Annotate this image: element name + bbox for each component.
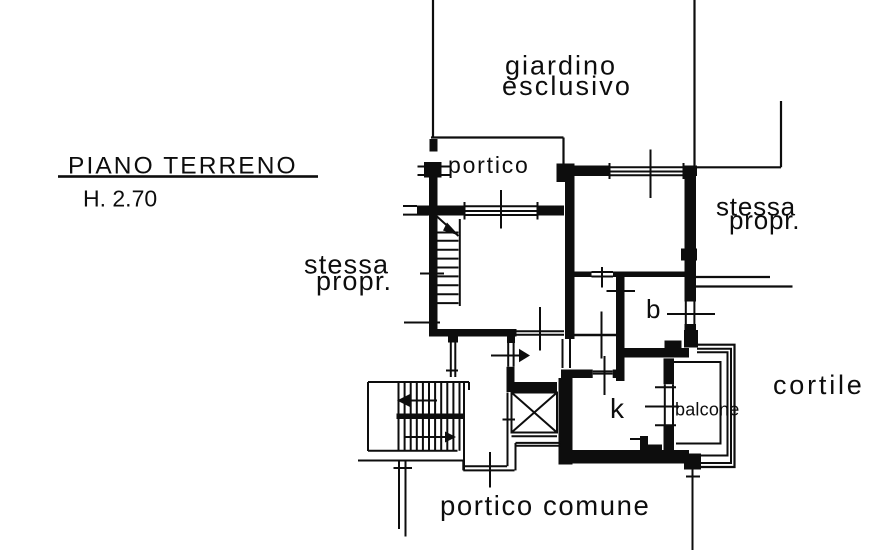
svg-text:b: b xyxy=(646,294,660,324)
svg-text:esclusivo: esclusivo xyxy=(502,71,632,101)
svg-text:H. 2.70: H. 2.70 xyxy=(83,186,157,212)
svg-text:portico: portico xyxy=(448,152,530,178)
svg-text:propr.: propr. xyxy=(316,266,392,296)
svg-text:portico comune: portico comune xyxy=(440,490,650,521)
svg-text:propr.: propr. xyxy=(729,205,800,235)
svg-text:cortile: cortile xyxy=(773,370,865,400)
svg-text:k: k xyxy=(610,393,625,424)
svg-text:balcone: balcone xyxy=(675,400,739,420)
